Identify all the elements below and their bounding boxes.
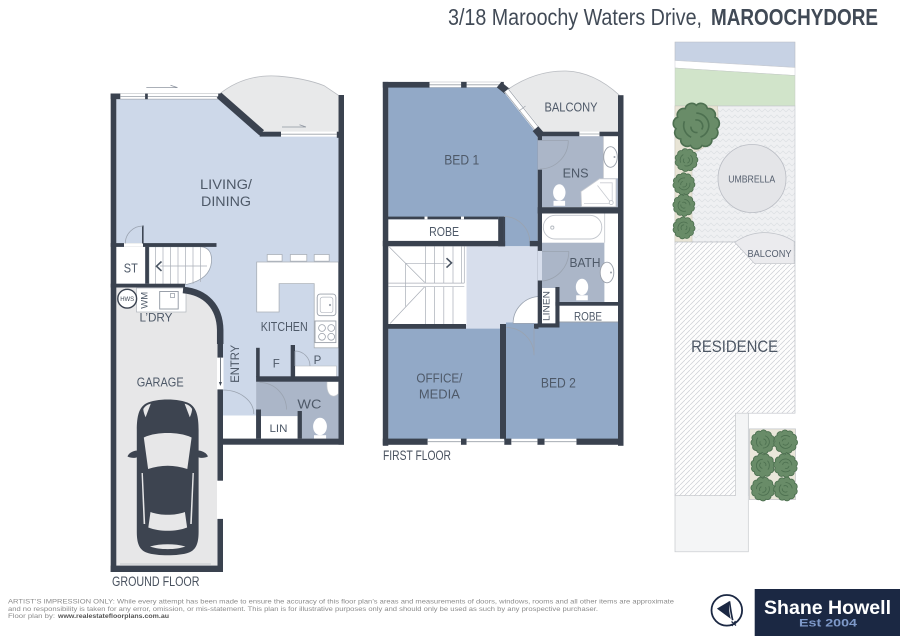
svg-text:ARTIST’S IMPRESSION ONLY: Whil: ARTIST’S IMPRESSION ONLY: While every at… bbox=[8, 599, 675, 606]
svg-text:BED 2: BED 2 bbox=[541, 375, 576, 390]
svg-text:UMBRELLA: UMBRELLA bbox=[728, 173, 775, 185]
svg-text:HWS: HWS bbox=[120, 297, 134, 303]
svg-text:MAROOCHYDORE: MAROOCHYDORE bbox=[711, 4, 878, 30]
svg-text:and no responsibility is taken: and no responsibility is taken for any e… bbox=[8, 606, 598, 613]
svg-text:GROUND FLOOR: GROUND FLOOR bbox=[112, 573, 200, 589]
svg-text:ENS: ENS bbox=[563, 167, 589, 181]
svg-text:Est 2004: Est 2004 bbox=[799, 618, 858, 630]
svg-text:LIN: LIN bbox=[270, 423, 288, 435]
svg-text:ST: ST bbox=[124, 262, 138, 276]
svg-text:DINING: DINING bbox=[201, 194, 251, 209]
svg-text:KITCHEN: KITCHEN bbox=[261, 320, 308, 334]
svg-text:www.realestatefloorplans.com.a: www.realestatefloorplans.com.au bbox=[57, 613, 169, 620]
svg-text:RESIDENCE: RESIDENCE bbox=[691, 338, 778, 356]
svg-text:OFFICE/: OFFICE/ bbox=[416, 371, 462, 386]
svg-text:FIRST FLOOR: FIRST FLOOR bbox=[383, 447, 451, 463]
svg-text:3/18 Maroochy Waters Drive,: 3/18 Maroochy Waters Drive, bbox=[448, 4, 702, 30]
svg-text:LIVING/: LIVING/ bbox=[200, 177, 252, 192]
svg-text:ENTRY: ENTRY bbox=[230, 344, 242, 382]
svg-text:ROBE: ROBE bbox=[574, 311, 602, 323]
svg-text:LINEN: LINEN bbox=[541, 291, 552, 321]
svg-text:MEDIA: MEDIA bbox=[419, 387, 460, 402]
svg-text:BED 1: BED 1 bbox=[444, 153, 479, 168]
svg-text:WM: WM bbox=[140, 292, 151, 309]
svg-text:BATH: BATH bbox=[570, 256, 601, 270]
svg-text:Floor plan by:: Floor plan by: bbox=[8, 613, 55, 620]
svg-text:P: P bbox=[314, 355, 322, 367]
svg-text:L’DRY: L’DRY bbox=[140, 313, 173, 325]
svg-text:ROBE: ROBE bbox=[429, 225, 459, 239]
svg-text:BALCONY: BALCONY bbox=[748, 248, 792, 260]
svg-text:F: F bbox=[273, 359, 280, 371]
svg-text:GARAGE: GARAGE bbox=[137, 376, 184, 390]
svg-text:Shane Howell: Shane Howell bbox=[764, 597, 891, 619]
svg-text:BALCONY: BALCONY bbox=[545, 101, 599, 115]
svg-text:WC: WC bbox=[297, 397, 321, 412]
